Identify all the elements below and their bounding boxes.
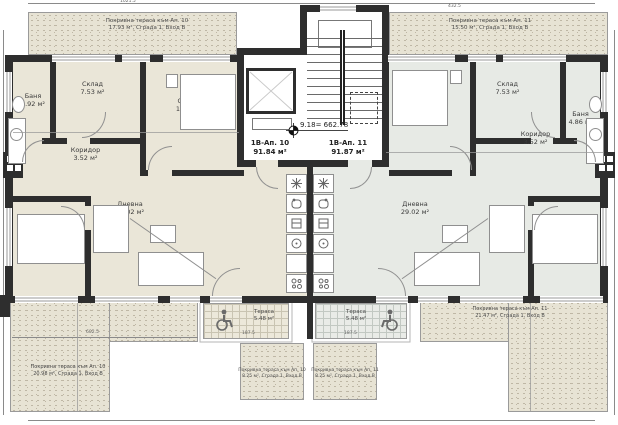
- bed: [392, 70, 448, 126]
- sink-icon: [313, 194, 334, 213]
- window: [503, 55, 566, 62]
- room-label-corridor-10: Коридор3.52 м²: [58, 146, 113, 163]
- dimension-line-right: [614, 30, 615, 415]
- shaft-cell: [15, 165, 21, 171]
- window: [601, 72, 608, 112]
- wall-bedroom4-left: [528, 202, 534, 206]
- window: [320, 5, 356, 12]
- wall-bedroom2-right: [85, 202, 91, 206]
- fridge-icon: [313, 214, 334, 233]
- dimension-line-bottom: [28, 420, 595, 421]
- wall-corner-left: [0, 295, 10, 317]
- sofa: [414, 252, 480, 286]
- bed: [180, 74, 236, 130]
- dimension-line-top: [28, 3, 595, 4]
- dimension-label: 187.5: [242, 331, 255, 336]
- toilet: [589, 96, 602, 113]
- wall-bedroom3-bottom: [389, 170, 452, 176]
- dimension-hairline: [530, 302, 531, 412]
- sink: [589, 128, 602, 141]
- wall-hall-bottom: [372, 160, 382, 167]
- window: [418, 296, 448, 303]
- balcony-door: [210, 296, 242, 303]
- dimension-line-left: [3, 30, 4, 415]
- floor-plan: 1021.5 432.5 Покривна тераса към Ап. 10 …: [0, 0, 618, 425]
- shaft-cell: [599, 165, 605, 171]
- roof-terrace-top-left-label: Покривна тераса към Ап. 10 17.93 м², Сгр…: [72, 18, 222, 33]
- dimension-hairline: [13, 132, 239, 133]
- level-mark-text: 9.18= 662.78: [300, 121, 348, 131]
- wall-bedroom1-bottom: [172, 170, 244, 176]
- burner-icon: [313, 174, 334, 193]
- window: [52, 55, 115, 62]
- window: [460, 296, 523, 303]
- balcony-left-label: Тераса 5.48 м²: [240, 309, 288, 324]
- roof-terrace-bottom-left-column: [10, 297, 110, 412]
- dimension-hairline: [77, 300, 78, 412]
- sink-icon: [286, 194, 307, 213]
- room-label-storage-10: Склад7.53 м²: [65, 80, 120, 97]
- wall-bedroom3-right: [470, 62, 476, 176]
- roof-terrace-bottom-left-label: Покривна тераса към Ап. 10 20.98 м², Сгр…: [16, 364, 120, 378]
- wall-bedroom2-top: [13, 196, 91, 202]
- window: [170, 296, 200, 303]
- roof-terrace-small-right-label: Покривна тераса към Ап. 11 8.25 м², Сгра…: [311, 368, 379, 380]
- dimension-line: [12, 337, 198, 338]
- window: [163, 55, 230, 62]
- wardrobe: [93, 205, 129, 253]
- apartment-11-label: 1В-Ап. 11 91.87 м²: [313, 139, 383, 158]
- wall-bedroom1-bottom: [140, 170, 148, 176]
- dimension-hairline: [386, 152, 603, 153]
- wall-corridor1-top: [90, 138, 144, 144]
- roof-terrace-small-left-label: Покривна тераса към Ап. 10 8.25 м², Сгра…: [238, 368, 306, 380]
- wall-storage1-right: [140, 62, 146, 176]
- fridge-icon: [286, 214, 307, 233]
- dimension-label: 602.5: [86, 330, 99, 335]
- window: [95, 296, 158, 303]
- counter: [313, 254, 334, 273]
- dimension-label: 1021.5: [120, 0, 136, 4]
- apartment-10-label: 1В-Ап. 10 91.84 м²: [235, 139, 305, 158]
- dimension-label: 432.5: [448, 4, 461, 9]
- elevator: [246, 68, 296, 114]
- roof-terrace-top-right-label: Покривна тераса към Ап. 11 15.50 м², Сгр…: [420, 18, 560, 33]
- wall-hall-bottom: [244, 160, 256, 167]
- balcony-right-label: Тераса 5.48 м²: [332, 309, 380, 324]
- wardrobe: [489, 205, 525, 253]
- stove-icon: [286, 274, 307, 293]
- roof-terrace-bottom-right-label: Покривна тераса към Ап. 11 21.47 м², Сгр…: [448, 306, 572, 320]
- balcony-door: [376, 296, 408, 303]
- window: [15, 296, 78, 303]
- sink: [10, 128, 23, 141]
- shaft-cell: [607, 156, 613, 162]
- sofa: [138, 252, 204, 286]
- pot-icon: [313, 234, 334, 253]
- shaft-cell: [607, 165, 613, 171]
- wall-corridor1-top: [42, 138, 67, 144]
- window: [388, 55, 455, 62]
- pot-icon: [286, 234, 307, 253]
- skylight-dashed: [350, 92, 378, 124]
- window: [5, 208, 12, 266]
- wheelchair-icon: [381, 308, 401, 332]
- wall-stair-right: [382, 5, 389, 167]
- window: [601, 208, 608, 266]
- dimension-label: 187.5: [344, 331, 357, 336]
- window: [540, 296, 603, 303]
- counter: [286, 254, 307, 273]
- window: [468, 55, 496, 62]
- stove-icon: [313, 274, 334, 293]
- toilet: [12, 96, 25, 113]
- window: [122, 55, 150, 62]
- wall-hall-bottom: [278, 160, 348, 167]
- shaft-cell: [7, 165, 13, 171]
- wall-bedroom2-right: [85, 230, 91, 300]
- level-mark-icon: [286, 123, 301, 138]
- room-label-storage-11: Склад7.53 м²: [480, 80, 535, 97]
- wall-bedroom4-top: [528, 196, 602, 202]
- burner-icon: [286, 174, 307, 193]
- nightstand: [450, 70, 462, 84]
- stair-railing: [340, 30, 345, 125]
- room-label-living-11: Дневна29.02 м²: [385, 200, 445, 217]
- wall-balcony-divider: [307, 303, 313, 339]
- nightstand: [166, 74, 178, 88]
- wheelchair-icon: [213, 308, 233, 332]
- wall-stair-step: [237, 48, 307, 55]
